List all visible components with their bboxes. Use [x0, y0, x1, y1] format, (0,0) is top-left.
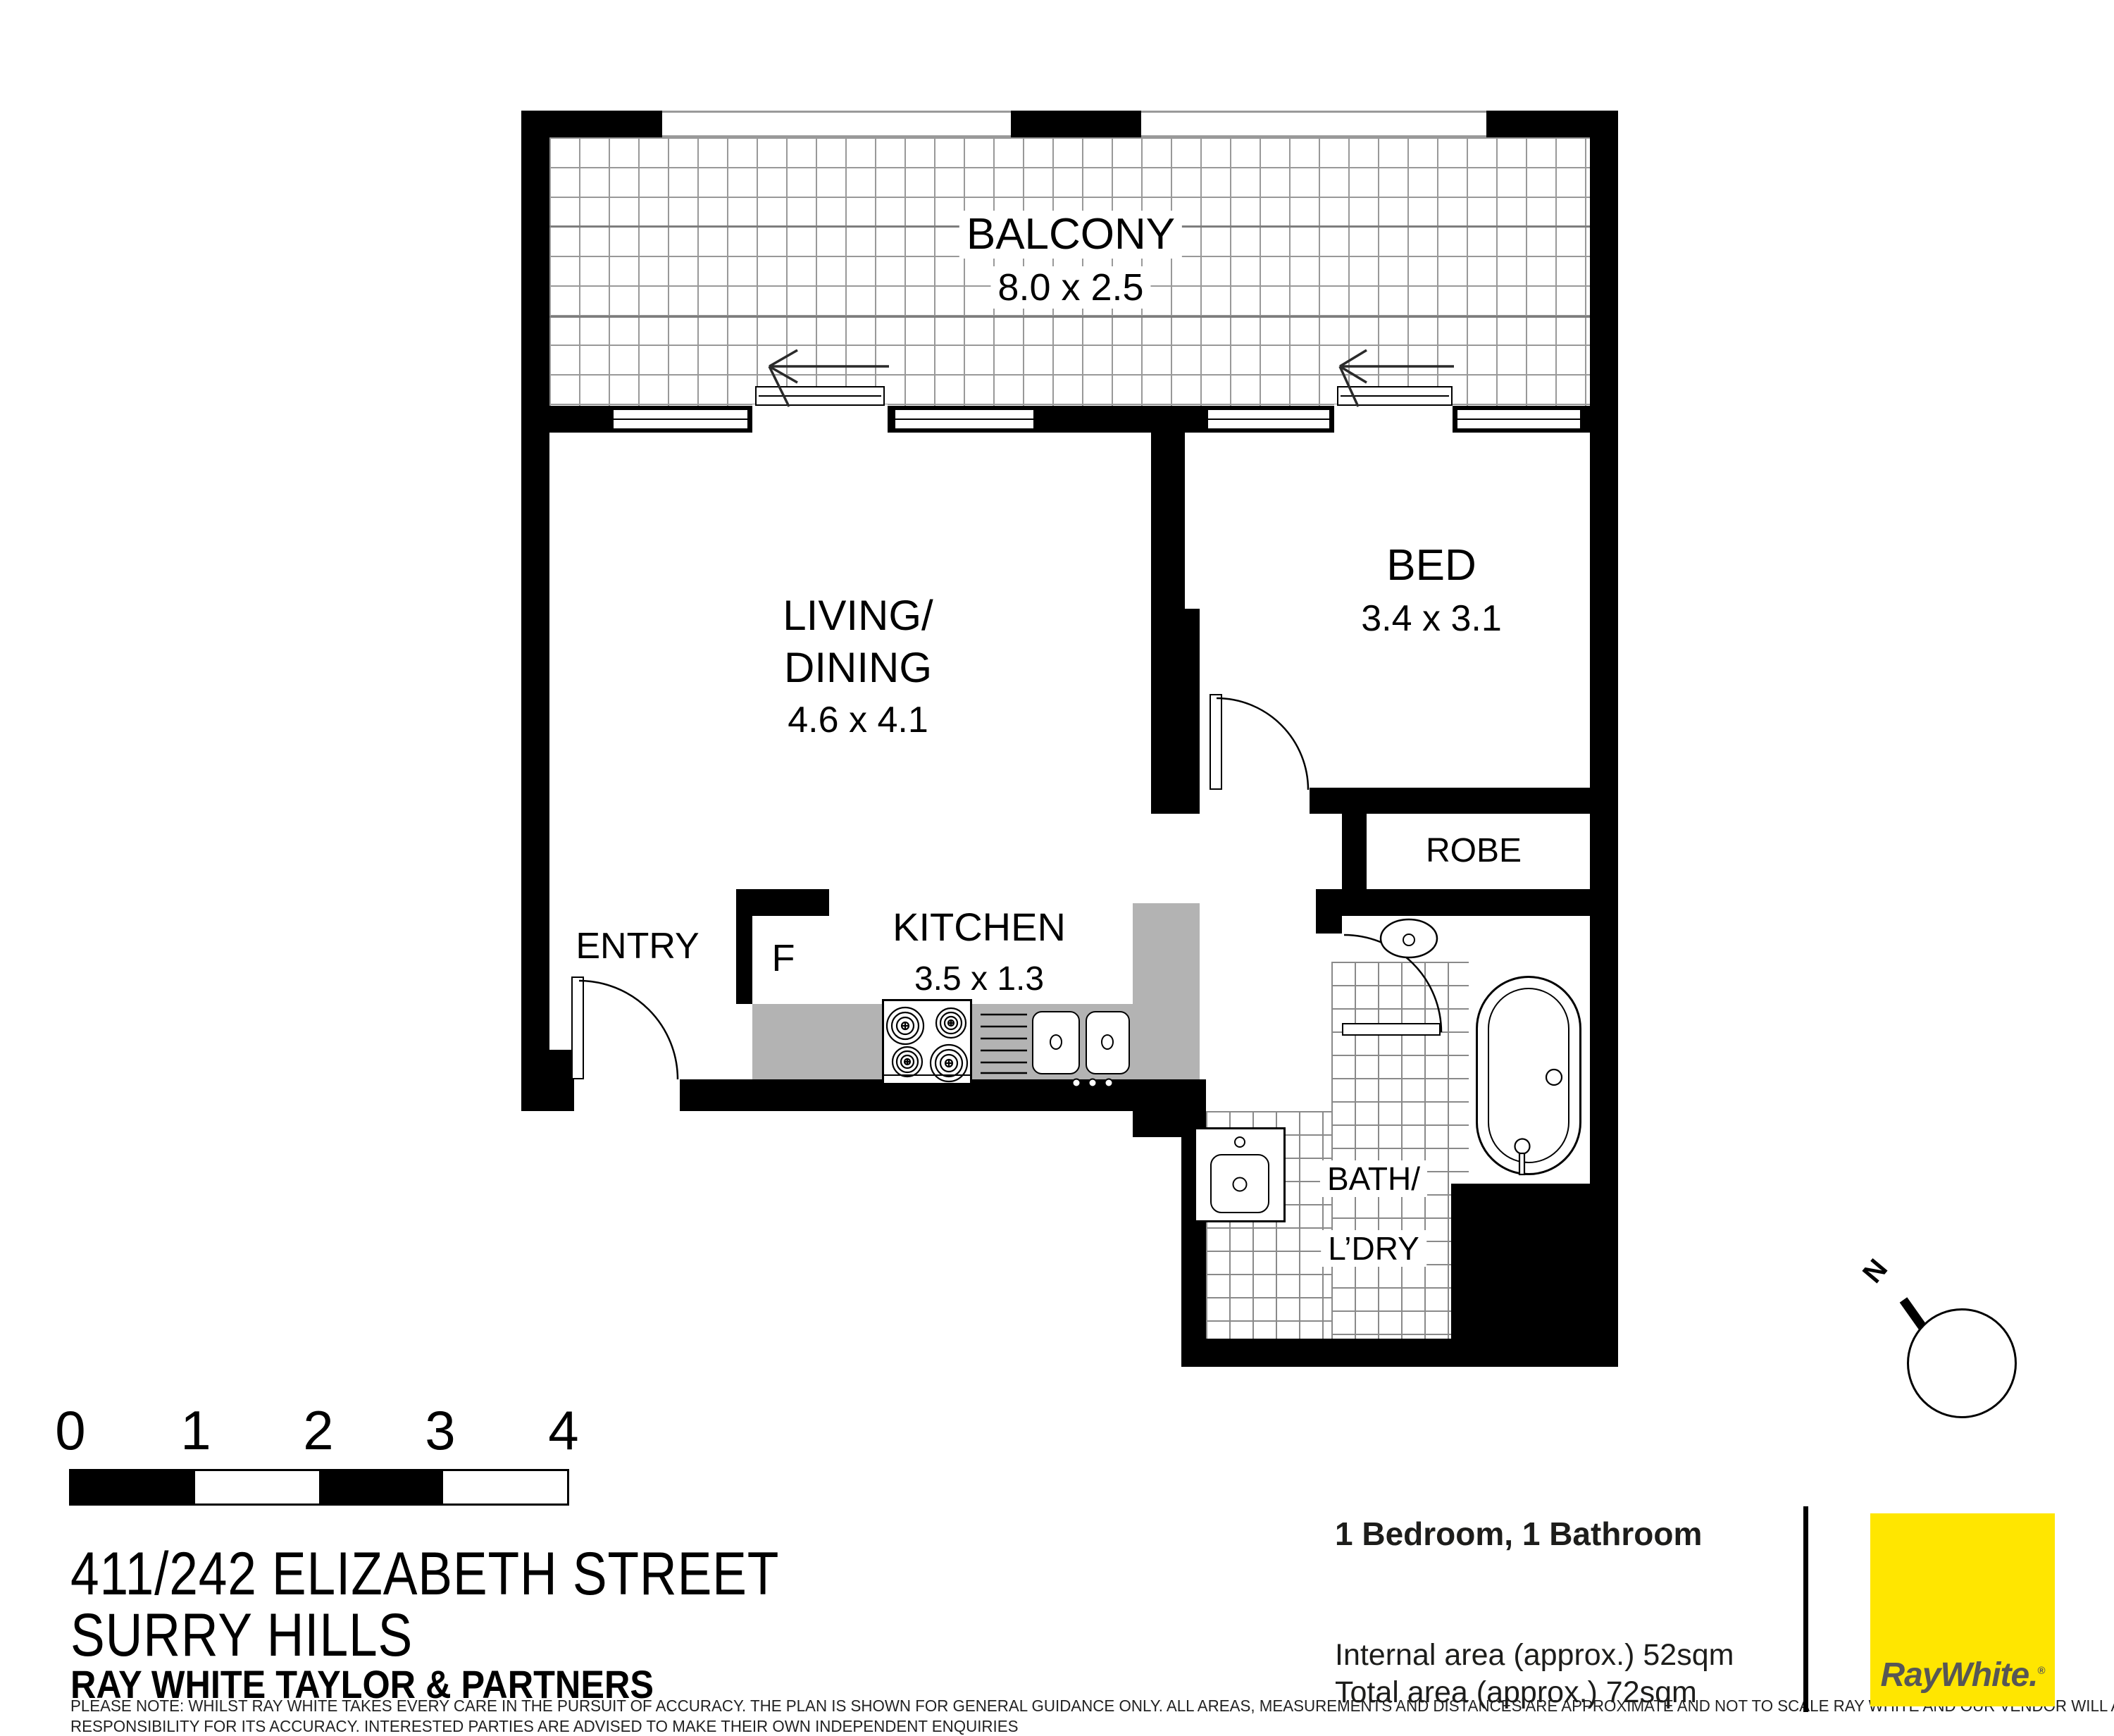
bath-label-line1: BATH/ — [1320, 1160, 1427, 1197]
laundry-sink-basin — [1210, 1154, 1269, 1213]
window — [1455, 408, 1582, 430]
window — [611, 408, 750, 430]
registered-mark: ® — [2037, 1665, 2044, 1677]
entry-label: ENTRY — [576, 928, 699, 965]
robe-label: ROBE — [1426, 834, 1522, 868]
kitchen-label: KITCHEN — [893, 907, 1066, 947]
stove — [882, 999, 972, 1085]
sliding-door-opening — [1334, 404, 1453, 434]
entry-door-arc — [579, 981, 678, 1079]
living-dims: 4.6 x 4.1 — [788, 702, 928, 738]
address-line2: SURRY HILLS — [70, 1601, 413, 1670]
bath-door-leaf — [1342, 1023, 1441, 1036]
wall-fridge-top — [736, 889, 829, 916]
wall-top-segment — [1011, 111, 1141, 137]
total-area: Total area (approx.) 72sqm — [1335, 1675, 1697, 1710]
raywhite-logo: RayWhite.® — [1870, 1513, 2055, 1706]
wall-bath-corner-block — [1451, 1184, 1618, 1367]
scale-bar-segment — [443, 1471, 567, 1503]
balcony-glass-balustrade — [1141, 111, 1486, 137]
raywhite-logo-text: RayWhite.® — [1880, 1656, 2044, 1694]
sliding-door-track — [1337, 386, 1453, 406]
wall-robe-top — [1310, 788, 1590, 814]
sliding-door-track — [755, 386, 885, 406]
disclaimer-line2: RESPONSIBILITY FOR ITS ACCURACY. INTERES… — [70, 1717, 1019, 1736]
scale-tick-label: 3 — [425, 1399, 455, 1463]
internal-area: Internal area (approx.) 52sqm — [1335, 1638, 1734, 1673]
balcony-dims: 8.0 x 2.5 — [990, 266, 1150, 309]
address-line1: 411/242 ELIZABETH STREET — [70, 1539, 779, 1609]
kitchen-counter-column — [1133, 903, 1200, 1079]
wall-living-bed-lower — [1151, 609, 1200, 814]
living-label-line2: DINING — [784, 647, 932, 689]
bath-label-line2: L’DRY — [1321, 1230, 1426, 1267]
wall-fridge-left — [736, 916, 752, 1004]
kitchen-sink-right — [1086, 1011, 1130, 1074]
kitchen-dims: 3.5 x 1.3 — [914, 962, 1044, 996]
vanity-counter — [1342, 916, 1590, 962]
living-label-line1: LIVING/ — [783, 595, 933, 637]
bath-floor-tiles-right — [1331, 962, 1469, 1339]
kitchen-sink-left — [1032, 1011, 1080, 1074]
bed-label: BED — [1386, 544, 1476, 588]
fridge-label: F — [772, 939, 795, 977]
window — [1206, 408, 1331, 430]
scale-tick-label: 2 — [303, 1399, 333, 1463]
balcony-label: BALCONY — [959, 211, 1182, 259]
bed-bath-summary: 1 Bedroom, 1 Bathroom — [1335, 1515, 1702, 1553]
scale-tick-label: 0 — [55, 1399, 85, 1463]
kitchen-counter-under-fridge — [752, 1004, 829, 1079]
wall-living-bed-upper — [1151, 433, 1185, 609]
scale-tick-label: 4 — [548, 1399, 578, 1463]
compass — [1907, 1308, 2017, 1418]
scale-bar-segment — [319, 1471, 443, 1503]
wall-robe-bottom — [1316, 889, 1618, 916]
compass-north-label: N — [1857, 1253, 1894, 1289]
window — [893, 408, 1036, 430]
bathtub-inner — [1488, 988, 1569, 1163]
footer-divider — [1803, 1506, 1808, 1712]
bed-dims: 3.4 x 3.1 — [1361, 600, 1501, 637]
scale-bar-segment — [71, 1471, 195, 1503]
sliding-door-opening — [752, 404, 888, 434]
wall-left-stub — [521, 1050, 574, 1111]
scale-bar — [69, 1469, 569, 1506]
wall-left — [521, 111, 549, 1111]
balcony-glass-balustrade — [662, 111, 1011, 137]
entry-door-leaf — [571, 976, 584, 1079]
wall-right — [1590, 111, 1618, 1367]
scale-tick-label: 1 — [180, 1399, 211, 1463]
wall-robe-left — [1342, 814, 1367, 889]
bedroom-door-arc — [1217, 698, 1308, 790]
scale-bar-segment — [195, 1471, 319, 1503]
bedroom-door-leaf — [1210, 694, 1222, 790]
wall-bath-door-jamb — [1316, 916, 1342, 934]
